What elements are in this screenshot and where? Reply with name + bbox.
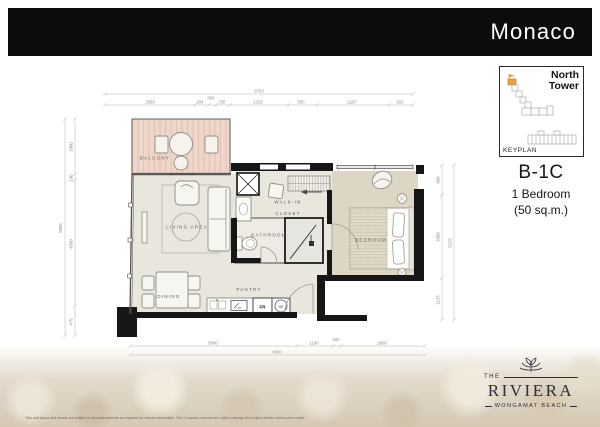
ottoman xyxy=(268,183,284,199)
logo-rule xyxy=(485,406,492,407)
balcony-chair xyxy=(155,136,168,153)
dining-chair xyxy=(142,294,154,308)
logo-rule xyxy=(504,377,579,378)
sink xyxy=(219,301,226,309)
svg-text:BEDROOM: BEDROOM xyxy=(355,238,387,243)
dining-chair xyxy=(142,276,154,290)
brochure-page: Monaco North Tower KEYPLAN B-1C 1 Be xyxy=(0,0,600,427)
balcony-table xyxy=(170,133,193,156)
svg-text:6965: 6965 xyxy=(58,223,63,233)
unit-type: 1 Bedroom xyxy=(481,187,600,201)
balcony-chair xyxy=(205,136,218,153)
svg-text:2800: 2800 xyxy=(377,341,387,346)
svg-text:FR: FR xyxy=(259,305,266,310)
svg-text:3300: 3300 xyxy=(436,232,441,242)
svg-text:PANTRY: PANTRY xyxy=(236,287,261,292)
svg-text:9703: 9703 xyxy=(254,89,264,94)
svg-text:202: 202 xyxy=(396,100,404,105)
beachfront-building-footprint xyxy=(528,131,576,144)
svg-text:500: 500 xyxy=(297,100,305,105)
north-tower-footprint xyxy=(508,74,553,115)
balcony-chair xyxy=(174,156,188,170)
dishwasher xyxy=(231,301,247,311)
riviera-logo: THE RIVIERA WONGAMAT BEACH xyxy=(484,357,578,409)
floor-plan-svg: 9703 2950 204 300 735 2315 500 2297 202 … xyxy=(45,78,475,388)
svg-text:1800: 1800 xyxy=(69,142,74,152)
logo-tagline: WONGAMAT BEACH xyxy=(495,403,568,409)
svg-text:2950: 2950 xyxy=(145,100,155,105)
svg-text:W: W xyxy=(279,304,283,309)
dining-table xyxy=(156,272,188,308)
svg-text:1100: 1100 xyxy=(309,341,319,346)
dining-chair xyxy=(188,276,200,290)
unit-code: B-1C xyxy=(481,162,600,184)
svg-text:100: 100 xyxy=(332,337,340,342)
dining-chair xyxy=(188,294,200,308)
svg-text:300: 300 xyxy=(207,96,215,101)
svg-text:1125: 1125 xyxy=(436,295,441,305)
svg-text:9000: 9000 xyxy=(272,350,282,355)
headboard xyxy=(409,207,414,270)
logo-the: THE xyxy=(484,374,501,380)
pillow xyxy=(392,213,404,238)
svg-text:190: 190 xyxy=(69,174,74,182)
unit-info: B-1C 1 Bedroom (50 sq.m.) xyxy=(481,162,600,217)
svg-text:BALCONY: BALCONY xyxy=(140,156,170,161)
sink xyxy=(210,301,217,309)
logo-rule xyxy=(570,406,577,407)
svg-text:735: 735 xyxy=(218,100,226,105)
svg-text:LIVING AREA: LIVING AREA xyxy=(166,225,208,230)
svg-text:204: 204 xyxy=(196,100,204,105)
keyplan-card: North Tower KEYPLAN xyxy=(499,66,584,157)
svg-text:WALK-IN: WALK-IN xyxy=(274,200,301,205)
keyplan-caption: KEYPLAN xyxy=(503,147,537,154)
svg-text:4500: 4500 xyxy=(69,239,74,249)
svg-text:475: 475 xyxy=(69,318,74,326)
svg-text:5225: 5225 xyxy=(448,238,453,248)
svg-text:2297: 2297 xyxy=(347,100,357,105)
dining-furniture xyxy=(142,272,200,308)
header-bar: Monaco xyxy=(8,8,592,56)
shower-head-icon xyxy=(309,241,314,246)
unit-highlight-marker xyxy=(508,79,516,85)
column xyxy=(117,307,137,337)
floor-plan: 9703 2950 204 300 735 2315 500 2297 202 … xyxy=(45,78,475,388)
logo-name: RIVIERA xyxy=(484,381,578,401)
svg-text:BATHROOM: BATHROOM xyxy=(251,233,286,238)
palm-ornament-icon xyxy=(484,357,578,373)
disclaimer-text: This unit layout and details are subject… xyxy=(25,416,306,420)
svg-text:5000: 5000 xyxy=(208,341,218,346)
basin-icon xyxy=(239,203,247,215)
page-title: Monaco xyxy=(491,19,576,45)
svg-text:2315: 2315 xyxy=(253,100,263,105)
svg-text:800: 800 xyxy=(436,176,441,184)
svg-text:DINING: DINING xyxy=(157,294,180,299)
pantry-counter: FR W xyxy=(207,298,290,314)
svg-text:CLOSET: CLOSET xyxy=(275,211,300,216)
faucet-icon xyxy=(216,299,218,301)
keyplan-tower-label: North Tower xyxy=(549,70,579,93)
unit-area: (50 sq.m.) xyxy=(481,203,600,217)
tv-console xyxy=(142,212,147,243)
unit-highlight-flag-icon xyxy=(509,74,515,78)
pillow xyxy=(392,240,404,265)
